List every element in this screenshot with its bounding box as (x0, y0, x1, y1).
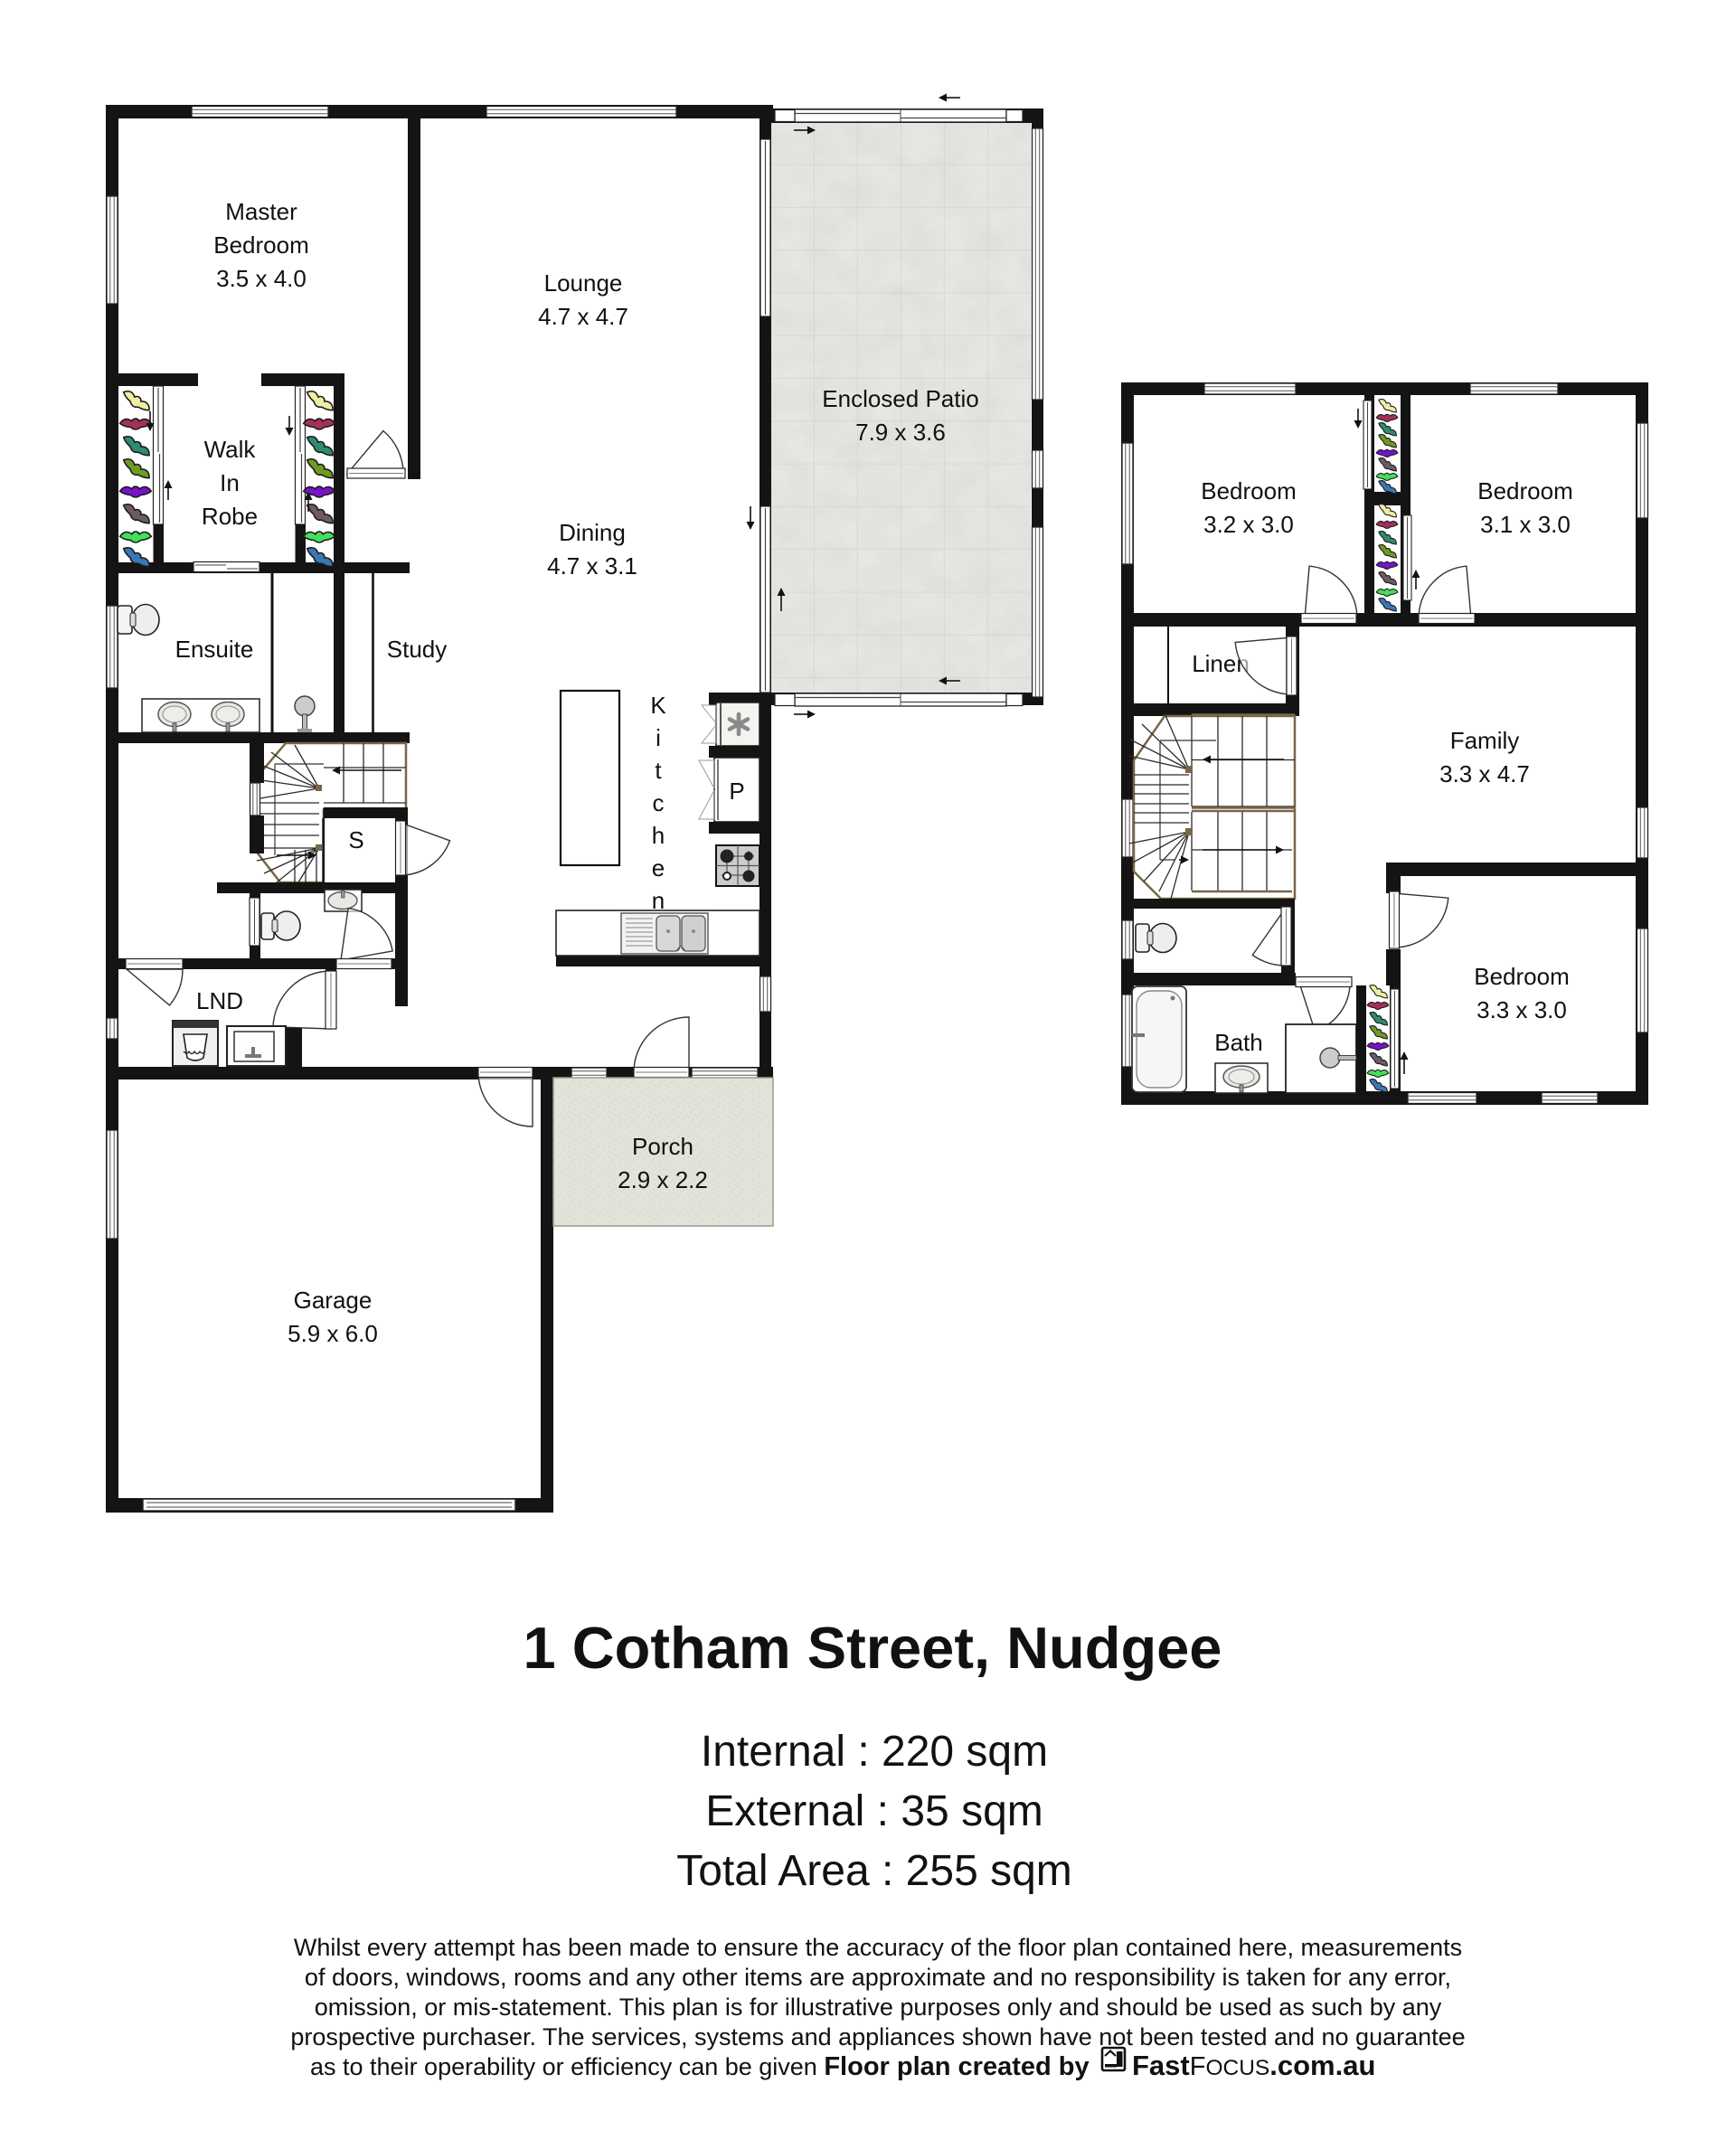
svg-text:External : 35 sqm: External : 35 sqm (705, 1787, 1043, 1835)
svg-text:Ensuite: Ensuite (175, 636, 254, 663)
svg-text:Total Area : 255 sqm: Total Area : 255 sqm (676, 1847, 1072, 1895)
svg-text:Internal : 220 sqm: Internal : 220 sqm (701, 1728, 1048, 1776)
svg-text:P: P (729, 778, 744, 805)
svg-text:1 Cotham Street, Nudgee: 1 Cotham Street, Nudgee (524, 1615, 1222, 1681)
svg-text:S: S (348, 826, 363, 853)
svg-text:MasterBedroom3.5 x 4.0: MasterBedroom3.5 x 4.0 (213, 198, 309, 292)
svg-text:Bath: Bath (1214, 1029, 1263, 1056)
svg-text:Study: Study (387, 636, 448, 663)
svg-text:LND: LND (196, 987, 243, 1014)
svg-text:as to their operability or eff: as to their operability or efficiency ca… (310, 2052, 1090, 2081)
